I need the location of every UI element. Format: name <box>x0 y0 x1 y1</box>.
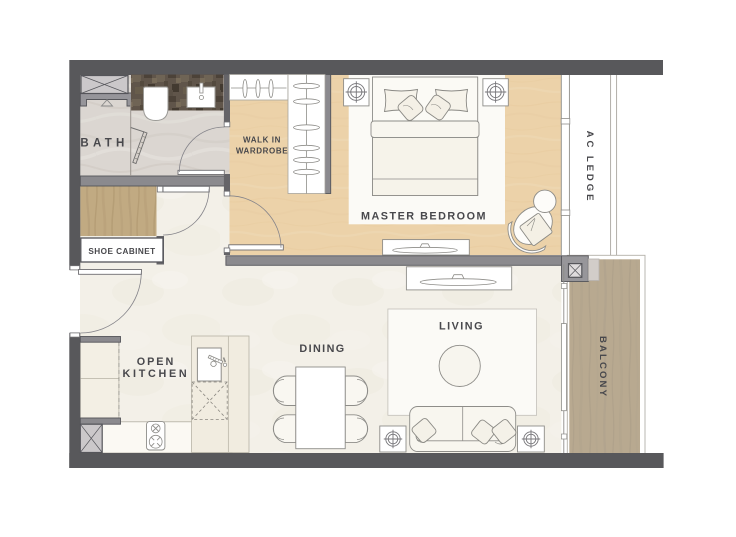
svg-text:WALK IN: WALK IN <box>243 135 281 144</box>
svg-text:LIVING: LIVING <box>439 321 484 333</box>
svg-text:DINING: DINING <box>299 343 345 355</box>
svg-text:WARDROBE: WARDROBE <box>236 147 288 156</box>
svg-text:AC LEDGE: AC LEDGE <box>584 131 595 204</box>
svg-text:BATH: BATH <box>80 138 128 150</box>
svg-text:OPEN: OPEN <box>137 356 176 368</box>
svg-text:MASTER BEDROOM: MASTER BEDROOM <box>361 211 487 223</box>
svg-text:SHOE CABINET: SHOE CABINET <box>88 247 155 256</box>
svg-text:KITCHEN: KITCHEN <box>123 368 190 380</box>
svg-text:BALCONY: BALCONY <box>597 336 608 398</box>
